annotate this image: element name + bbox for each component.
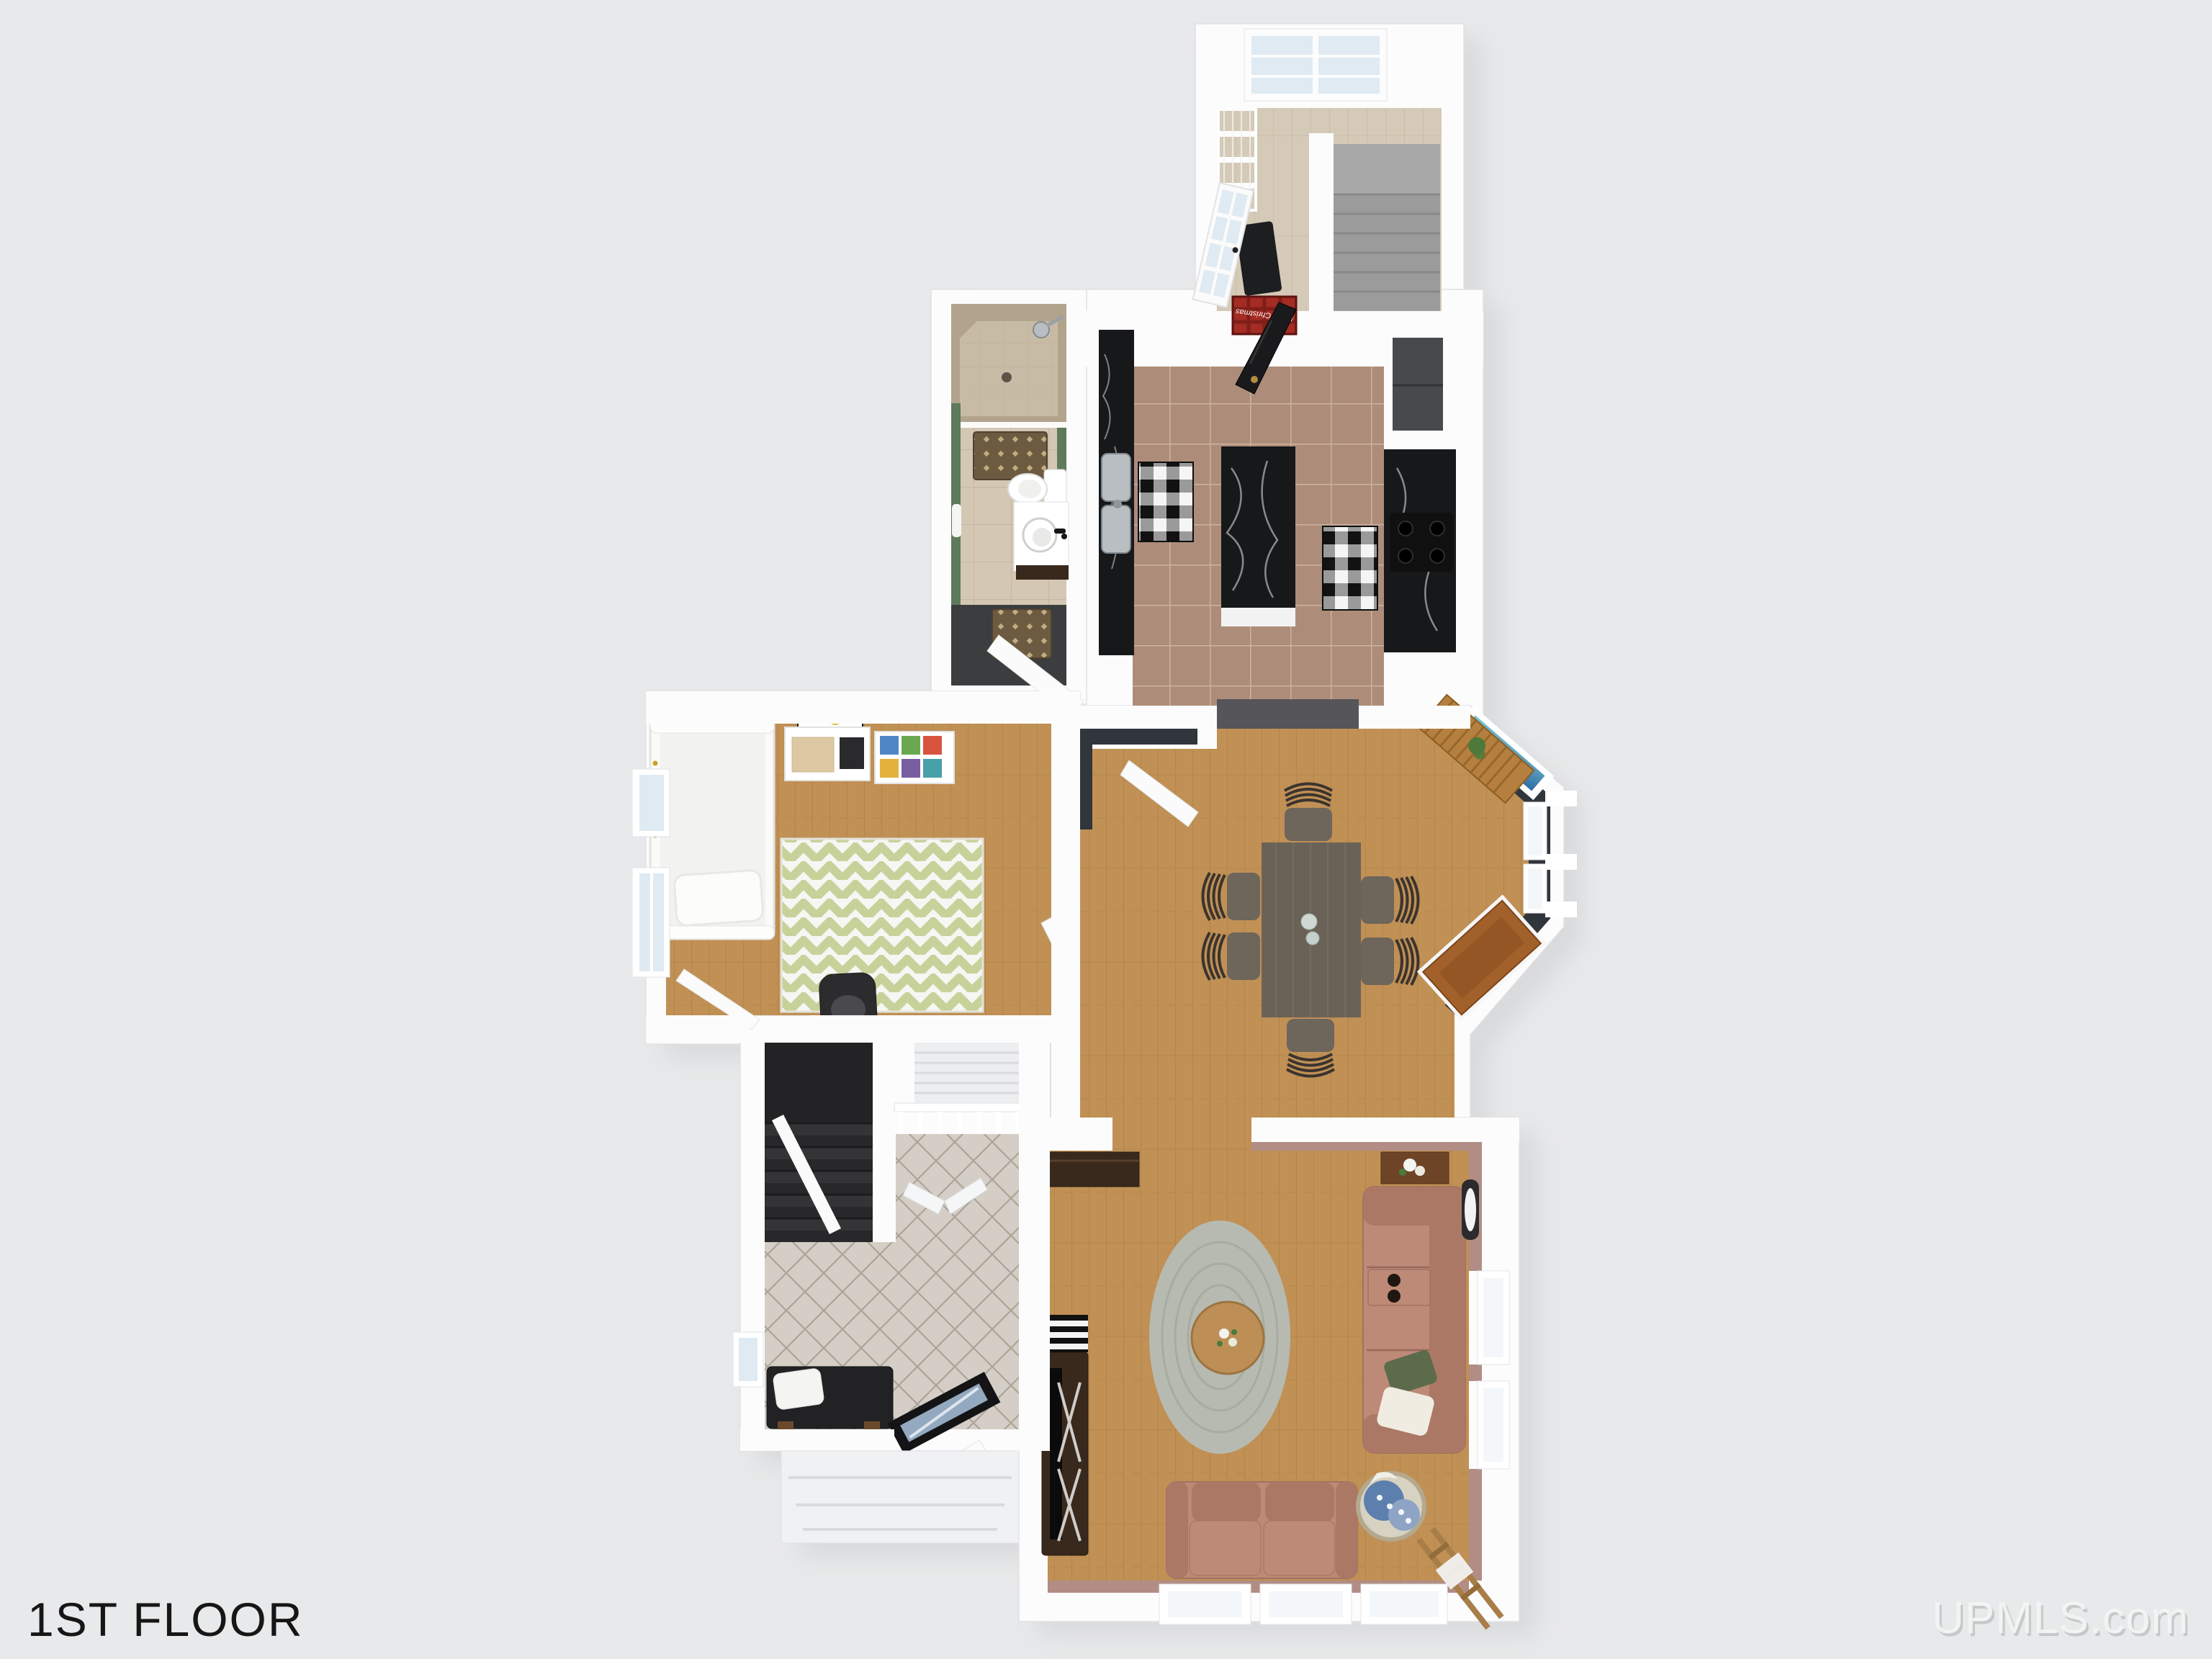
bench-pillow — [773, 1368, 824, 1411]
shower — [951, 304, 1066, 428]
table-bowl — [1306, 932, 1319, 945]
bedroom — [632, 703, 1090, 1037]
watermark: UPMLS.com UPMLS.com — [1932, 1593, 2191, 1646]
floorplan-rendering: Merry Christmas — [0, 0, 2212, 1659]
table-bowl — [1301, 914, 1317, 930]
foyer-window — [733, 1332, 763, 1387]
shower-curb — [951, 422, 1066, 428]
chevron-rug — [781, 839, 983, 1012]
oval-rug — [1149, 1220, 1290, 1454]
kitchen-rug-right — [1323, 526, 1377, 610]
wall-clock — [1462, 1179, 1479, 1240]
banister-rail — [894, 1103, 1039, 1112]
kitchen-rug-left — [1138, 462, 1193, 541]
kitchen-threshold — [1217, 699, 1359, 731]
kitchen-right-counter — [1384, 328, 1462, 724]
floorplan-page: Merry Christmas — [0, 0, 2212, 1659]
sectional-sofa — [1363, 1187, 1465, 1453]
mudroom-window — [1244, 29, 1387, 101]
stair-divider-wall — [1309, 133, 1334, 311]
living-windows-south — [1159, 1584, 1447, 1624]
entry-bench — [767, 1367, 893, 1430]
dresser — [785, 727, 870, 781]
side-table — [1381, 1152, 1449, 1184]
bedroom-window-upper — [632, 769, 670, 837]
coffee-table — [1192, 1302, 1264, 1374]
sofa-console — [1368, 1269, 1430, 1305]
striped-ottoman — [1045, 1315, 1088, 1352]
sill-nub — [1545, 902, 1577, 917]
shower-drain — [1002, 372, 1012, 382]
sill-nub — [1545, 854, 1577, 870]
vanity — [1014, 502, 1069, 580]
porch — [781, 1451, 1019, 1543]
foyer — [733, 1043, 1050, 1505]
stair-stringer-wall — [873, 1043, 896, 1242]
cooktop — [1390, 513, 1453, 572]
living-room — [1042, 1141, 1509, 1632]
bed-pillow — [674, 870, 764, 926]
gray-staircase — [1334, 144, 1440, 311]
towel — [952, 504, 961, 537]
bathroom-rug — [974, 432, 1047, 480]
bathroom — [951, 304, 1084, 717]
kitchen-left-counter — [1099, 330, 1134, 655]
kitchen-island — [1221, 446, 1295, 626]
bedroom-window-lower — [632, 868, 670, 977]
desk — [1044, 1152, 1139, 1187]
sill-nub — [1545, 791, 1577, 806]
faucet — [1054, 529, 1066, 534]
loveseat — [1166, 1482, 1357, 1578]
bookshelf — [875, 732, 954, 783]
black-staircase — [765, 1043, 896, 1242]
refrigerator — [1385, 330, 1450, 438]
floor-label: 1ST FLOOR — [27, 1593, 304, 1646]
blanket-basket — [1358, 1472, 1424, 1539]
watermark-text: UPMLS.com — [1932, 1593, 2189, 1643]
